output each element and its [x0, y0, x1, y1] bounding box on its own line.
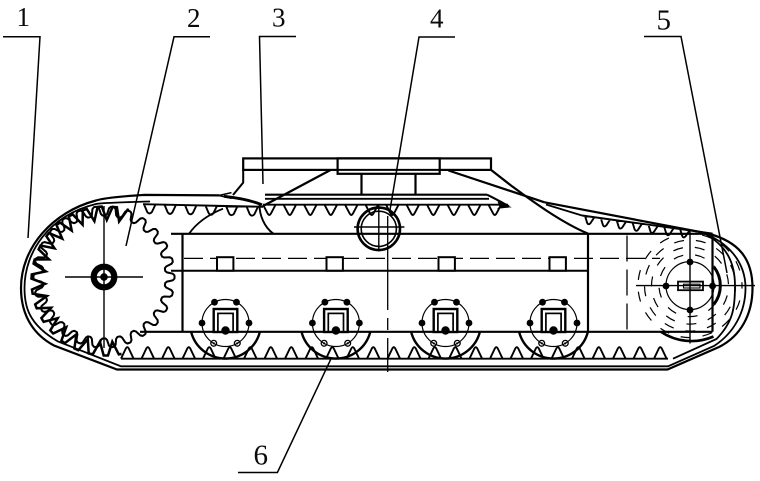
svg-text:4: 4 — [430, 4, 444, 34]
svg-text:6: 6 — [254, 440, 269, 472]
svg-text:5: 5 — [657, 5, 672, 37]
svg-text:1: 1 — [17, 2, 31, 32]
svg-text:3: 3 — [272, 3, 286, 33]
svg-text:2: 2 — [187, 3, 201, 33]
